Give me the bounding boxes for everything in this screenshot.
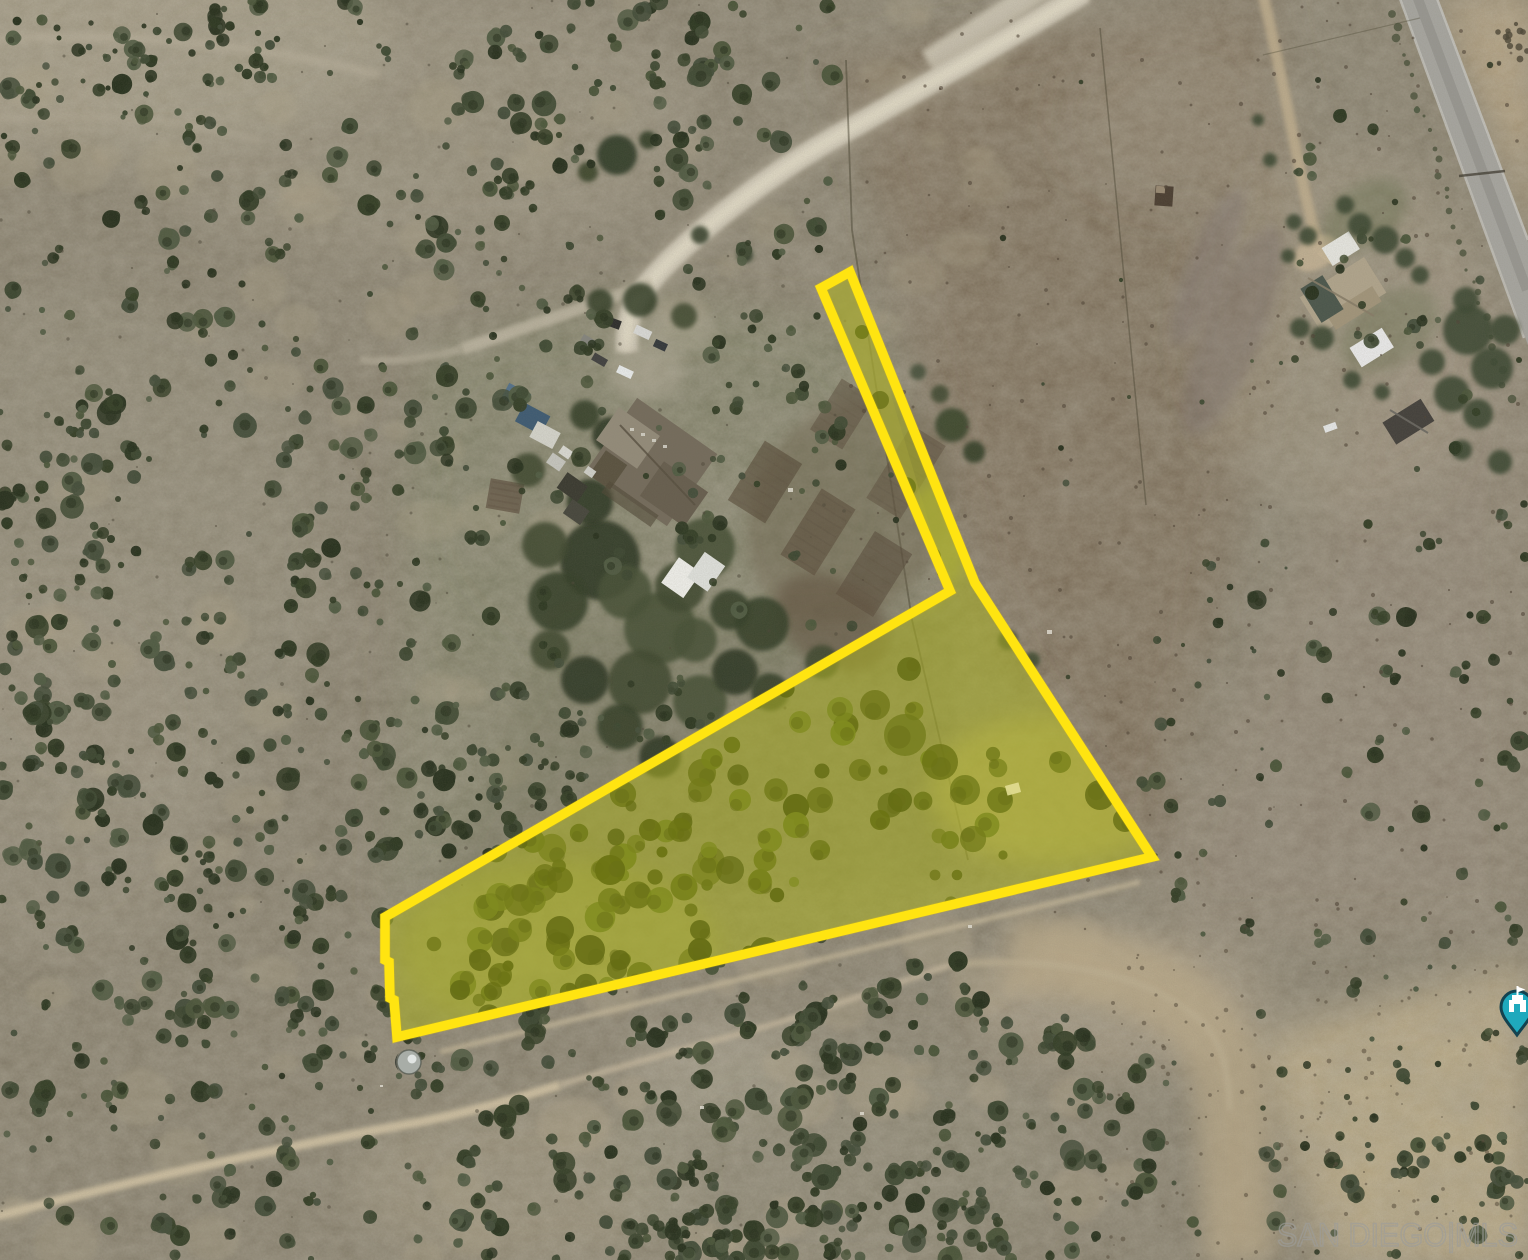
svg-text:SAN DIEGO|MLS: SAN DIEGO|MLS	[1277, 1217, 1518, 1253]
